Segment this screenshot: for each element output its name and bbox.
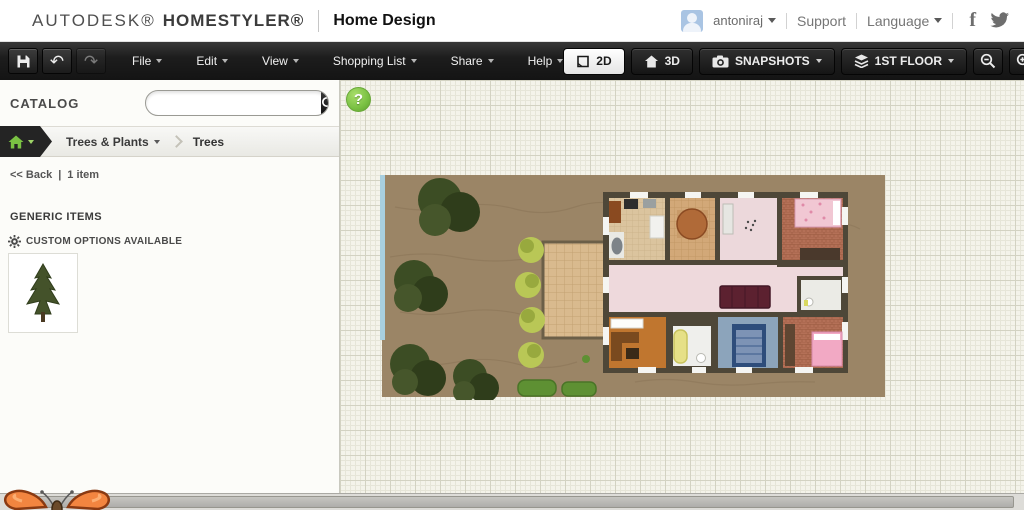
chevron-down-icon bbox=[156, 59, 162, 63]
breadcrumb-separator-icon bbox=[170, 135, 183, 148]
snapshots-button[interactable]: SNAPSHOTS bbox=[699, 48, 835, 75]
floor-label: 1ST FLOOR bbox=[875, 54, 942, 68]
view-3d-button[interactable]: 3D bbox=[631, 48, 693, 75]
scrollbar-thumb[interactable] bbox=[38, 496, 1014, 508]
search-button[interactable] bbox=[321, 91, 329, 115]
language-menu[interactable]: Language bbox=[867, 13, 942, 29]
menu-shopping-list-label: Shopping List bbox=[333, 54, 406, 68]
menu-edit-label: Edit bbox=[196, 54, 217, 68]
redo-icon: ↷ bbox=[84, 53, 98, 70]
breadcrumb-home-button[interactable] bbox=[0, 126, 52, 157]
facebook-icon[interactable]: f bbox=[969, 9, 976, 32]
menu-help[interactable]: Help bbox=[528, 54, 564, 68]
view-2d-button[interactable]: 2D bbox=[563, 48, 624, 75]
menu-share-label: Share bbox=[451, 54, 483, 68]
deck[interactable] bbox=[543, 242, 605, 338]
chevron-down-icon bbox=[154, 140, 160, 144]
snapshots-label: SNAPSHOTS bbox=[735, 54, 810, 68]
back-link[interactable]: << Back bbox=[10, 169, 52, 181]
chevron-down-icon bbox=[411, 59, 417, 63]
item-count: 1 item bbox=[67, 169, 99, 181]
undo-icon: ↶ bbox=[50, 53, 64, 70]
breadcrumb-category[interactable]: Trees & Plants bbox=[66, 135, 160, 149]
tree-thumbnail-icon bbox=[21, 262, 65, 324]
menu-share[interactable]: Share bbox=[451, 54, 494, 68]
floor-plan[interactable] bbox=[380, 172, 885, 400]
zoom-in-icon bbox=[1016, 53, 1024, 69]
twitter-icon[interactable] bbox=[990, 12, 1010, 29]
menu-view-label: View bbox=[262, 54, 288, 68]
username-label: antoniraj bbox=[713, 13, 763, 28]
chevron-down-icon bbox=[28, 140, 34, 144]
catalog-title: CATALOG bbox=[10, 96, 79, 111]
redo-button[interactable]: ↷ bbox=[76, 48, 106, 74]
menu-shopping-list[interactable]: Shopping List bbox=[333, 54, 417, 68]
page-title: Home Design bbox=[333, 12, 435, 30]
catalog-search bbox=[145, 90, 329, 116]
brand-divider bbox=[318, 10, 319, 32]
breadcrumb-current: Trees bbox=[193, 135, 224, 149]
home-icon bbox=[8, 135, 24, 149]
chevron-down-icon bbox=[948, 59, 954, 63]
chevron-down-icon bbox=[768, 18, 776, 23]
section-title: GENERIC ITEMS bbox=[0, 181, 339, 223]
search-input[interactable] bbox=[146, 91, 321, 115]
menu-file-label: File bbox=[132, 54, 151, 68]
chevron-down-icon bbox=[488, 59, 494, 63]
divider bbox=[786, 13, 787, 29]
top-bar: AUTODESK® HOMESTYLER® Home Design antoni… bbox=[0, 0, 1024, 42]
camera-icon bbox=[712, 55, 729, 68]
menu-edit[interactable]: Edit bbox=[196, 54, 228, 68]
save-button[interactable] bbox=[8, 48, 38, 74]
view-3d-label: 3D bbox=[665, 54, 680, 68]
menu-view[interactable]: View bbox=[262, 54, 299, 68]
avatar[interactable] bbox=[681, 10, 703, 32]
design-canvas[interactable]: ? bbox=[340, 80, 1024, 493]
horizontal-scrollbar[interactable] bbox=[0, 493, 1024, 510]
breadcrumb: Trees & Plants Trees bbox=[0, 126, 339, 157]
layers-icon bbox=[854, 54, 869, 68]
catalog-sidebar: CATALOG Trees & Plants Trees << Back bbox=[0, 80, 340, 493]
brand-autodesk: AUTODESK® bbox=[32, 11, 156, 31]
language-label: Language bbox=[867, 13, 929, 29]
back-separator: | bbox=[58, 169, 61, 181]
view-2d-label: 2D bbox=[596, 54, 611, 68]
3d-view-icon bbox=[644, 55, 659, 68]
chevron-down-icon bbox=[293, 59, 299, 63]
floor-selector-button[interactable]: 1ST FLOOR bbox=[841, 48, 967, 75]
pool-edge bbox=[380, 175, 385, 340]
help-button[interactable]: ? bbox=[346, 87, 371, 112]
zoom-in-button[interactable] bbox=[1009, 48, 1024, 75]
main-toolbar: ↶ ↷ File Edit View Shopping List Share H… bbox=[0, 42, 1024, 80]
support-link[interactable]: Support bbox=[797, 13, 846, 29]
menu-help-label: Help bbox=[528, 54, 553, 68]
custom-options-label: CUSTOM OPTIONS AVAILABLE bbox=[26, 236, 182, 247]
divider bbox=[856, 13, 857, 29]
user-menu[interactable]: antoniraj bbox=[713, 13, 776, 28]
gear-icon bbox=[8, 235, 21, 248]
brand-homestyler: HOMESTYLER® bbox=[163, 11, 305, 31]
chevron-down-icon bbox=[222, 59, 228, 63]
zoom-out-button[interactable] bbox=[973, 48, 1003, 75]
chevron-down-icon bbox=[816, 59, 822, 63]
save-icon bbox=[16, 54, 31, 69]
breadcrumb-category-label: Trees & Plants bbox=[66, 135, 149, 149]
search-icon bbox=[321, 96, 329, 111]
catalog-item-generic-tree[interactable] bbox=[8, 253, 78, 333]
zoom-out-icon bbox=[980, 53, 996, 69]
divider bbox=[952, 13, 953, 29]
2d-view-icon bbox=[576, 55, 590, 68]
bathroom-right[interactable] bbox=[799, 278, 843, 312]
menu-file[interactable]: File bbox=[132, 54, 162, 68]
chevron-down-icon bbox=[934, 18, 942, 23]
house[interactable] bbox=[603, 192, 848, 373]
butterfly-logo bbox=[2, 487, 112, 510]
support-label: Support bbox=[797, 13, 846, 29]
brand-logo: AUTODESK® HOMESTYLER® bbox=[32, 11, 304, 31]
undo-button[interactable]: ↶ bbox=[42, 48, 72, 74]
